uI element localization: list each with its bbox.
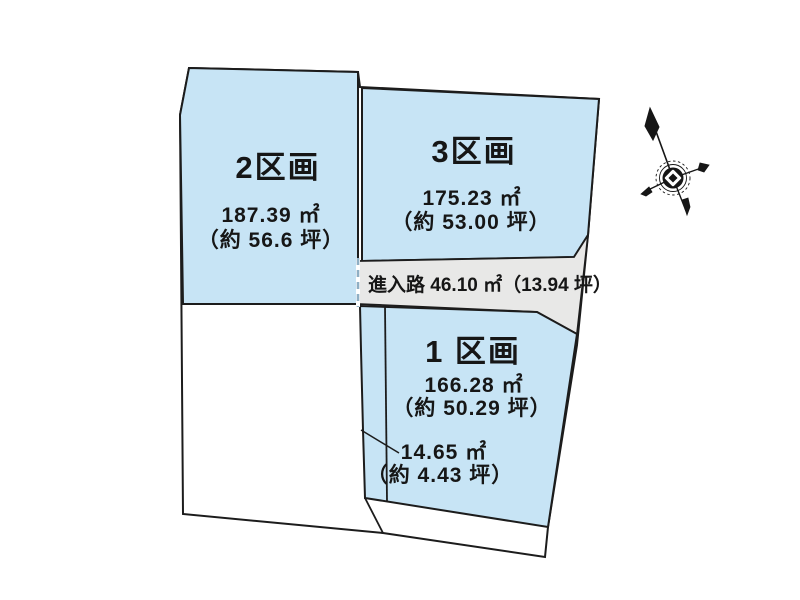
lot-3-area-tsubo: （約 53.00 坪）	[391, 210, 550, 234]
lot-3-shape	[362, 88, 599, 261]
lot-1-area-tsubo: （約 50.29 坪）	[392, 396, 551, 420]
site-plan-canvas: 2区画 187.39 ㎡ （約 56.6 坪） 3区画 175.23 ㎡ （約 …	[0, 0, 800, 600]
lot-2-area-tsubo: （約 56.6 坪）	[198, 228, 345, 252]
lot-2-shape	[180, 68, 358, 304]
lot-1-area-m2: 166.28 ㎡	[424, 373, 523, 397]
lot-1-name: 1 区画	[425, 334, 521, 369]
access-road-label: 進入路 46.10 ㎡（13.94 坪）	[368, 273, 612, 296]
lot-2-name: 2区画	[235, 150, 320, 185]
land-plot-diagram: 2区画 187.39 ㎡ （約 56.6 坪） 3区画 175.23 ㎡ （約 …	[0, 0, 800, 600]
lot-3-area-m2: 175.23 ㎡	[422, 186, 521, 210]
lot-2-area-m2: 187.39 ㎡	[221, 203, 320, 227]
sub-area-m2: 14.65 ㎡	[401, 440, 487, 464]
sub-area-tsubo: （約 4.43 坪）	[367, 463, 514, 487]
north-arrow-icon	[641, 108, 709, 215]
lot-3-name: 3区画	[431, 134, 516, 169]
